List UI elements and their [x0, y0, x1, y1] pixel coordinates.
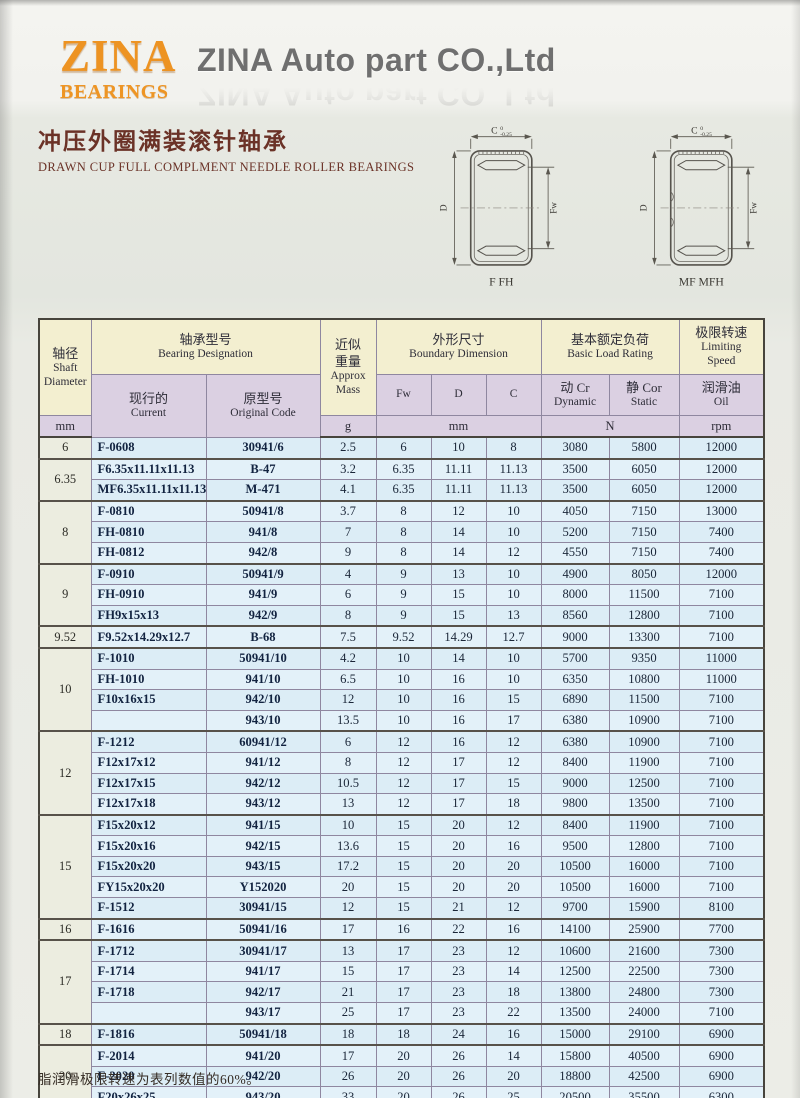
d-cell: 26	[431, 1087, 486, 1098]
original-code-cell: 943/15	[206, 856, 320, 877]
c-cell: 11.13	[486, 480, 541, 501]
c-cell: 12	[486, 815, 541, 836]
d-cell: 17	[431, 794, 486, 815]
shaft-diameter-cell: 15	[39, 815, 91, 919]
original-code-cell: 942/9	[206, 605, 320, 626]
dynamic-load-cell: 4900	[541, 564, 609, 585]
d-cell: 22	[431, 919, 486, 941]
table-row: 9.52F9.52x14.29x12.7B-687.59.5214.2912.7…	[39, 626, 764, 648]
bearing-diagram-mf-mfh: C 0 -0.25 D Fw MF MFH	[630, 120, 798, 302]
c-cell: 15	[486, 690, 541, 711]
svg-text:0: 0	[700, 126, 703, 132]
current-designation-cell	[91, 710, 206, 731]
original-code-cell: 941/10	[206, 669, 320, 690]
oil-speed-cell: 12000	[679, 480, 764, 501]
dynamic-load-cell: 5700	[541, 648, 609, 669]
c-cell: 12	[486, 731, 541, 752]
c-cell: 20	[486, 856, 541, 877]
d-cell: 15	[431, 585, 486, 606]
c-cell: 10	[486, 522, 541, 543]
table-row: F-1718942/172117231813800248007300	[39, 982, 764, 1003]
static-load-cell: 10800	[609, 669, 679, 690]
fw-cell: 15	[376, 836, 431, 857]
mass-cell: 6	[320, 585, 376, 606]
original-code-cell: 941/8	[206, 522, 320, 543]
current-designation-cell: F-1512	[91, 898, 206, 919]
d-cell: 20	[431, 815, 486, 836]
original-code-cell: 50941/16	[206, 919, 320, 941]
table-row: 8F-081050941/83.7812104050715013000	[39, 501, 764, 522]
mass-cell: 25	[320, 1003, 376, 1024]
bearing-diagram-f-fh: C 0 -0.25 D Fw F FH	[430, 120, 598, 302]
oil-speed-cell: 7100	[679, 794, 764, 815]
header-limiting-speed: 极限转速 Limiting Speed	[679, 319, 764, 375]
shaft-diameter-cell: 12	[39, 731, 91, 814]
fw-cell: 16	[376, 919, 431, 941]
original-code-cell: 50941/18	[206, 1024, 320, 1046]
static-load-cell: 11900	[609, 815, 679, 836]
c-cell: 12	[486, 940, 541, 961]
c-cell: 11.13	[486, 459, 541, 480]
oil-speed-cell: 7400	[679, 522, 764, 543]
original-code-cell: 943/10	[206, 710, 320, 731]
c-cell: 18	[486, 794, 541, 815]
dynamic-load-cell: 14100	[541, 919, 609, 941]
dynamic-load-cell: 10500	[541, 877, 609, 898]
mass-cell: 13	[320, 940, 376, 961]
dynamic-load-cell: 6380	[541, 710, 609, 731]
oil-speed-cell: 13000	[679, 501, 764, 522]
d-cell: 20	[431, 856, 486, 877]
static-load-cell: 35500	[609, 1087, 679, 1098]
dynamic-load-cell: 4050	[541, 501, 609, 522]
d-cell: 10	[431, 437, 486, 459]
fw-cell: 9.52	[376, 626, 431, 648]
unit-boundary-mm: mm	[376, 416, 541, 438]
svg-text:C: C	[491, 126, 497, 137]
oil-speed-cell: 7100	[679, 585, 764, 606]
c-cell: 20	[486, 1066, 541, 1087]
fw-cell: 10	[376, 710, 431, 731]
original-code-cell: 50941/8	[206, 501, 320, 522]
d-cell: 12	[431, 501, 486, 522]
svg-text:D: D	[638, 204, 649, 211]
mass-cell: 12	[320, 898, 376, 919]
static-load-cell: 13300	[609, 626, 679, 648]
fw-cell: 15	[376, 856, 431, 877]
fw-cell: 20	[376, 1045, 431, 1066]
fw-cell: 9	[376, 564, 431, 585]
unit-shaft-mm: mm	[39, 416, 91, 438]
original-code-cell: 943/17	[206, 1003, 320, 1024]
current-designation-cell: F20x26x25	[91, 1087, 206, 1098]
fw-cell: 20	[376, 1066, 431, 1087]
mass-cell: 8	[320, 752, 376, 773]
original-code-cell: 942/10	[206, 690, 320, 711]
table-row: 9F-091050941/94913104900805012000	[39, 564, 764, 585]
header-c: C	[486, 375, 541, 416]
original-code-cell: 943/12	[206, 794, 320, 815]
current-designation-cell	[91, 1003, 206, 1024]
table-row: 16F-161650941/161716221614100259007700	[39, 919, 764, 941]
c-cell: 10	[486, 648, 541, 669]
static-load-cell: 21600	[609, 940, 679, 961]
oil-speed-cell: 7100	[679, 1003, 764, 1024]
static-load-cell: 11500	[609, 690, 679, 711]
dynamic-load-cell: 9000	[541, 626, 609, 648]
bearing-cross-section-icon: C 0 -0.25 D Fw F FH	[430, 120, 598, 302]
d-cell: 21	[431, 898, 486, 919]
mass-cell: 3.7	[320, 501, 376, 522]
dynamic-load-cell: 15800	[541, 1045, 609, 1066]
mass-cell: 12	[320, 690, 376, 711]
oil-speed-cell: 7400	[679, 542, 764, 563]
static-load-cell: 42500	[609, 1066, 679, 1087]
fw-cell: 10	[376, 669, 431, 690]
c-cell: 25	[486, 1087, 541, 1098]
mass-cell: 7	[320, 522, 376, 543]
current-designation-cell: F-2014	[91, 1045, 206, 1066]
bearing-cross-section-icon: C 0 -0.25 D Fw MF MFH	[630, 120, 798, 302]
current-designation-cell: FH-0910	[91, 585, 206, 606]
company-name: ZINA Auto part CO.,Ltd	[197, 42, 556, 79]
shaft-diameter-cell: 9	[39, 564, 91, 627]
current-designation-cell: F10x16x15	[91, 690, 206, 711]
d-cell: 14	[431, 522, 486, 543]
c-cell: 16	[486, 919, 541, 941]
mass-cell: 2.5	[320, 437, 376, 459]
fw-cell: 17	[376, 940, 431, 961]
shaft-diameter-cell: 10	[39, 648, 91, 731]
mass-cell: 20	[320, 877, 376, 898]
header-current: 现行的 Current	[91, 375, 206, 438]
d-cell: 23	[431, 1003, 486, 1024]
original-code-cell: 941/15	[206, 815, 320, 836]
fw-cell: 10	[376, 648, 431, 669]
table-row: 20F-2014941/201720261415800405006900	[39, 1045, 764, 1066]
mass-cell: 21	[320, 982, 376, 1003]
static-load-cell: 12500	[609, 773, 679, 794]
unit-speed-rpm: rpm	[679, 416, 764, 438]
header-oil: 润滑油 Oil	[679, 375, 764, 416]
static-load-cell: 16000	[609, 877, 679, 898]
oil-speed-cell: 7100	[679, 626, 764, 648]
oil-speed-cell: 7100	[679, 836, 764, 857]
diagram-caption: F FH	[489, 275, 514, 288]
fw-cell: 12	[376, 731, 431, 752]
current-designation-cell: FH-0812	[91, 542, 206, 563]
c-cell: 14	[486, 1045, 541, 1066]
original-code-cell: 942/17	[206, 982, 320, 1003]
oil-speed-cell: 6900	[679, 1024, 764, 1046]
dynamic-load-cell: 9800	[541, 794, 609, 815]
static-load-cell: 7150	[609, 501, 679, 522]
shaft-diameter-cell: 18	[39, 1024, 91, 1046]
table-row: F12x17x18943/12131217189800135007100	[39, 794, 764, 815]
company-name-reflection: ZINA Auto part CO.,Ltd	[197, 75, 556, 112]
fw-cell: 20	[376, 1087, 431, 1098]
current-designation-cell: MF6.35x11.11x11.13	[91, 480, 206, 501]
shaft-diameter-cell: 16	[39, 919, 91, 941]
oil-speed-cell: 7300	[679, 982, 764, 1003]
d-cell: 14	[431, 542, 486, 563]
c-cell: 12	[486, 898, 541, 919]
dynamic-load-cell: 12500	[541, 961, 609, 982]
d-cell: 16	[431, 690, 486, 711]
unit-load-n: N	[541, 416, 679, 438]
c-cell: 15	[486, 773, 541, 794]
d-cell: 16	[431, 710, 486, 731]
static-load-cell: 13500	[609, 794, 679, 815]
header-bearing-designation: 轴承型号 Bearing Designation	[91, 319, 320, 375]
shaft-diameter-cell: 6	[39, 437, 91, 459]
mass-cell: 4.2	[320, 648, 376, 669]
dynamic-load-cell: 10600	[541, 940, 609, 961]
dynamic-load-cell: 8400	[541, 815, 609, 836]
mass-cell: 10	[320, 815, 376, 836]
mass-cell: 4	[320, 564, 376, 585]
original-code-cell: 60941/12	[206, 731, 320, 752]
fw-cell: 17	[376, 982, 431, 1003]
fw-cell: 6.35	[376, 459, 431, 480]
oil-speed-cell: 12000	[679, 437, 764, 459]
oil-speed-cell: 7100	[679, 773, 764, 794]
dynamic-load-cell: 8400	[541, 752, 609, 773]
static-load-cell: 11900	[609, 752, 679, 773]
fw-cell: 8	[376, 542, 431, 563]
c-cell: 12.7	[486, 626, 541, 648]
fw-cell: 12	[376, 752, 431, 773]
original-code-cell: 942/15	[206, 836, 320, 857]
dynamic-load-cell: 13800	[541, 982, 609, 1003]
d-cell: 13	[431, 564, 486, 585]
grease-speed-footnote: 脂润滑极限转速为表列数值的60%。	[38, 1068, 260, 1088]
d-cell: 16	[431, 731, 486, 752]
current-designation-cell: FH-1010	[91, 669, 206, 690]
table-row: FY15x20x20Y1520202015202010500160007100	[39, 877, 764, 898]
original-code-cell: 941/12	[206, 752, 320, 773]
mass-cell: 13.6	[320, 836, 376, 857]
fw-cell: 12	[376, 794, 431, 815]
static-load-cell: 6050	[609, 459, 679, 480]
current-designation-cell: F-1616	[91, 919, 206, 941]
original-code-cell: 50941/9	[206, 564, 320, 585]
c-cell: 16	[486, 836, 541, 857]
oil-speed-cell: 7100	[679, 877, 764, 898]
table-row: MF6.35x11.11x11.13M-4714.16.3511.1111.13…	[39, 480, 764, 501]
mass-cell: 3.2	[320, 459, 376, 480]
fw-cell: 12	[376, 773, 431, 794]
original-code-cell: 941/17	[206, 961, 320, 982]
original-code-cell: 30941/15	[206, 898, 320, 919]
d-cell: 17	[431, 773, 486, 794]
mass-cell: 6	[320, 731, 376, 752]
dynamic-load-cell: 9500	[541, 836, 609, 857]
table-row: F20x26x25943/203320262520500355006300	[39, 1087, 764, 1098]
mass-cell: 17	[320, 1045, 376, 1066]
mass-cell: 17.2	[320, 856, 376, 877]
header-boundary-dimension: 外形尺寸 Boundary Dimension	[376, 319, 541, 375]
header-approx-mass: 近似 重量 Approx Mass	[320, 319, 376, 416]
static-load-cell: 10900	[609, 710, 679, 731]
svg-text:Fw: Fw	[548, 202, 558, 214]
d-cell: 24	[431, 1024, 486, 1046]
table-row: 6.35F6.35x11.11x11.13B-473.26.3511.1111.…	[39, 459, 764, 480]
header-dynamic-cr: 动 Cr Dynamic	[541, 375, 609, 416]
current-designation-cell: F-0608	[91, 437, 206, 459]
oil-speed-cell: 7100	[679, 690, 764, 711]
mass-cell: 33	[320, 1087, 376, 1098]
original-code-cell: Y152020	[206, 877, 320, 898]
table-row: 6F-060830941/62.561083080580012000	[39, 437, 764, 459]
table-row: 15F15x20x12941/15101520128400119007100	[39, 815, 764, 836]
d-cell: 11.11	[431, 480, 486, 501]
dynamic-load-cell: 8000	[541, 585, 609, 606]
table-row: 943/172517232213500240007100	[39, 1003, 764, 1024]
d-cell: 23	[431, 982, 486, 1003]
d-cell: 17	[431, 752, 486, 773]
header-fw: Fw	[376, 375, 431, 416]
table-row: FH-0810941/8781410520071507400	[39, 522, 764, 543]
mass-cell: 6.5	[320, 669, 376, 690]
fw-cell: 6	[376, 437, 431, 459]
mass-cell: 15	[320, 961, 376, 982]
table-row: 12F-121260941/1261216126380109007100	[39, 731, 764, 752]
static-load-cell: 8050	[609, 564, 679, 585]
static-load-cell: 25900	[609, 919, 679, 941]
dynamic-load-cell: 6350	[541, 669, 609, 690]
svg-text:D: D	[438, 204, 449, 211]
static-load-cell: 24800	[609, 982, 679, 1003]
oil-speed-cell: 6900	[679, 1045, 764, 1066]
mass-cell: 4.1	[320, 480, 376, 501]
dynamic-load-cell: 5200	[541, 522, 609, 543]
dynamic-load-cell: 9700	[541, 898, 609, 919]
catalog-page: ZINA BEARINGS ZINA Auto part CO.,Ltd ZIN…	[0, 0, 800, 1098]
table-row: F15x20x20943/1517.215202010500160007100	[39, 856, 764, 877]
oil-speed-cell: 7100	[679, 731, 764, 752]
current-designation-cell: FH9x15x13	[91, 605, 206, 626]
company-header: ZINA Auto part CO.,Ltd ZINA Auto part CO…	[197, 42, 556, 112]
oil-speed-cell: 7300	[679, 961, 764, 982]
static-load-cell: 40500	[609, 1045, 679, 1066]
static-load-cell: 6050	[609, 480, 679, 501]
current-designation-cell: F15x20x16	[91, 836, 206, 857]
d-cell: 14.29	[431, 626, 486, 648]
logo-text-bearings: BEARINGS	[60, 82, 190, 102]
static-load-cell: 29100	[609, 1024, 679, 1046]
fw-cell: 18	[376, 1024, 431, 1046]
table-row: F15x20x16942/1513.61520169500128007100	[39, 836, 764, 857]
static-load-cell: 7150	[609, 522, 679, 543]
current-designation-cell: F9.52x14.29x12.7	[91, 626, 206, 648]
original-code-cell: M-471	[206, 480, 320, 501]
static-load-cell: 12800	[609, 605, 679, 626]
d-cell: 14	[431, 648, 486, 669]
svg-text:0: 0	[500, 126, 503, 132]
dynamic-load-cell: 3500	[541, 459, 609, 480]
static-load-cell: 7150	[609, 542, 679, 563]
dynamic-load-cell: 15000	[541, 1024, 609, 1046]
dynamic-load-cell: 20500	[541, 1087, 609, 1098]
shaft-diameter-cell: 9.52	[39, 626, 91, 648]
c-cell: 16	[486, 1024, 541, 1046]
static-load-cell: 9350	[609, 648, 679, 669]
shaft-diameter-cell: 8	[39, 501, 91, 564]
c-cell: 14	[486, 961, 541, 982]
dynamic-load-cell: 13500	[541, 1003, 609, 1024]
dynamic-load-cell: 3080	[541, 437, 609, 459]
zina-logo: ZINA BEARINGS	[60, 34, 190, 102]
oil-speed-cell: 6300	[679, 1087, 764, 1098]
current-designation-cell: F-1212	[91, 731, 206, 752]
oil-speed-cell: 7100	[679, 605, 764, 626]
table-row: FH-0812942/8981412455071507400	[39, 542, 764, 563]
header-shaft-diameter: 轴径 Shaft Diameter	[39, 319, 91, 416]
fw-cell: 15	[376, 877, 431, 898]
mass-cell: 18	[320, 1024, 376, 1046]
current-designation-cell: F-0810	[91, 501, 206, 522]
oil-speed-cell: 7300	[679, 940, 764, 961]
d-cell: 23	[431, 961, 486, 982]
shaft-diameter-cell: 6.35	[39, 459, 91, 501]
original-code-cell: 942/8	[206, 542, 320, 563]
section-title: 冲压外圈满装滚针轴承 DRAWN CUP FULL COMPLMENT NEED…	[38, 128, 414, 175]
mass-cell: 13.5	[320, 710, 376, 731]
c-cell: 10	[486, 669, 541, 690]
d-cell: 16	[431, 669, 486, 690]
table-row: 10F-101050941/104.21014105700935011000	[39, 648, 764, 669]
header-basic-load-rating: 基本额定负荷 Basic Load Rating	[541, 319, 679, 375]
shaft-diameter-cell: 17	[39, 940, 91, 1023]
current-designation-cell: F-1714	[91, 961, 206, 982]
fw-cell: 9	[376, 585, 431, 606]
static-load-cell: 12800	[609, 836, 679, 857]
fw-cell: 15	[376, 815, 431, 836]
fw-cell: 9	[376, 605, 431, 626]
svg-text:C: C	[691, 126, 697, 137]
oil-speed-cell: 7700	[679, 919, 764, 941]
original-code-cell: 941/9	[206, 585, 320, 606]
header-original-code: 原型号 Original Code	[206, 375, 320, 438]
diagram-caption: MF MFH	[679, 275, 725, 288]
fw-cell: 17	[376, 961, 431, 982]
c-cell: 12	[486, 542, 541, 563]
d-cell: 26	[431, 1066, 486, 1087]
mass-cell: 17	[320, 919, 376, 941]
original-code-cell: 943/20	[206, 1087, 320, 1098]
oil-speed-cell: 7100	[679, 752, 764, 773]
oil-speed-cell: 7100	[679, 856, 764, 877]
mass-cell: 13	[320, 794, 376, 815]
header-d: D	[431, 375, 486, 416]
current-designation-cell: F6.35x11.11x11.13	[91, 459, 206, 480]
c-cell: 17	[486, 710, 541, 731]
svg-text:Fw: Fw	[748, 202, 758, 214]
mass-cell: 7.5	[320, 626, 376, 648]
oil-speed-cell: 8100	[679, 898, 764, 919]
table-row: 943/1013.51016176380109007100	[39, 710, 764, 731]
fw-cell: 6.35	[376, 480, 431, 501]
original-code-cell: 941/20	[206, 1045, 320, 1066]
static-load-cell: 15900	[609, 898, 679, 919]
dynamic-load-cell: 8560	[541, 605, 609, 626]
original-code-cell: B-47	[206, 459, 320, 480]
d-cell: 15	[431, 605, 486, 626]
oil-speed-cell: 12000	[679, 564, 764, 585]
current-designation-cell: FY15x20x20	[91, 877, 206, 898]
table-row: F12x17x15942/1210.51217159000125007100	[39, 773, 764, 794]
